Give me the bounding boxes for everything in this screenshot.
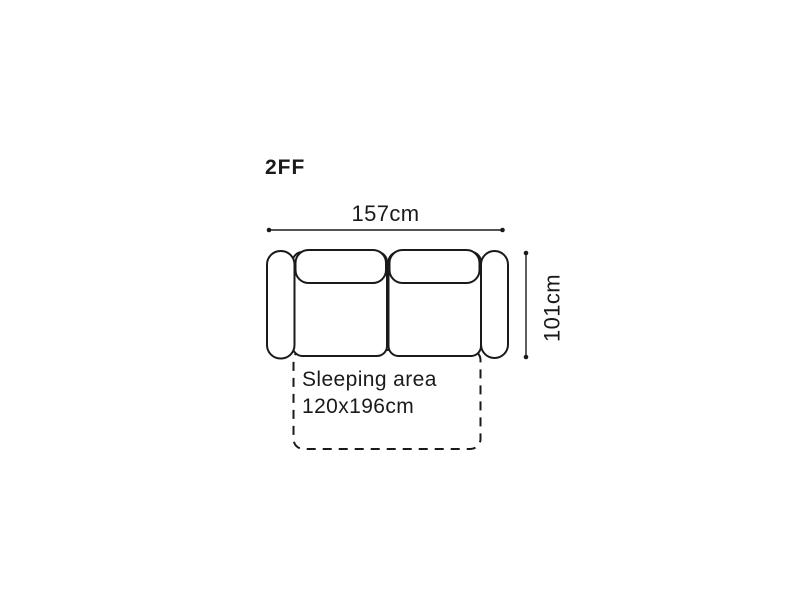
width-dimension-label: 157cm	[310, 201, 461, 227]
sofa-right-armrest	[481, 251, 508, 358]
depth-dimension-label: 101cm	[540, 233, 564, 384]
sofa-left-back-cushion	[296, 250, 387, 283]
sleeping-area-label-line2: 120x196cm	[302, 393, 437, 420]
product-title: 2FF	[265, 156, 305, 180]
sofa-left-armrest	[267, 251, 295, 359]
width-dimension-line-icon	[267, 228, 505, 233]
sleeping-area-label: Sleeping area 120x196cm	[302, 366, 437, 420]
depth-dimension-line-icon	[524, 251, 529, 360]
sofa-right-back-cushion	[390, 250, 480, 283]
sleeping-area-label-line1: Sleeping area	[302, 366, 437, 393]
sofa-top-view-drawing	[0, 0, 800, 600]
sofa-dimension-diagram: 2FF 157cm 101cm Sleeping area 120x196cm	[0, 0, 800, 600]
